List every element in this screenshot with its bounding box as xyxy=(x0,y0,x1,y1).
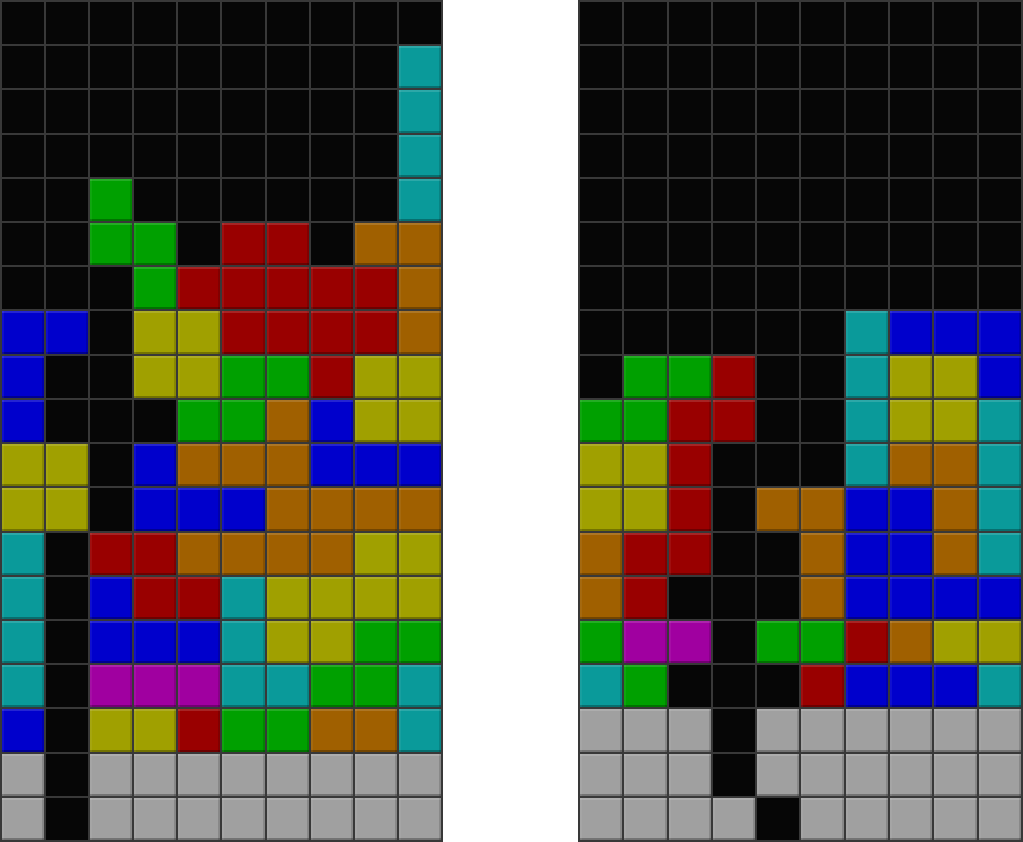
cell xyxy=(624,709,666,751)
cell xyxy=(757,2,799,44)
cell xyxy=(134,709,176,751)
cell xyxy=(890,754,932,796)
cell xyxy=(399,135,441,177)
cell xyxy=(311,533,353,575)
cell xyxy=(46,223,88,265)
cell xyxy=(2,444,44,486)
cell xyxy=(890,577,932,619)
cell xyxy=(134,311,176,353)
cell xyxy=(846,223,888,265)
cell xyxy=(669,356,711,398)
cell xyxy=(178,46,220,88)
cell xyxy=(669,577,711,619)
cell xyxy=(624,488,666,530)
cell xyxy=(355,577,397,619)
cell xyxy=(669,400,711,442)
cell xyxy=(580,533,622,575)
cell xyxy=(624,665,666,707)
cell xyxy=(46,400,88,442)
cell xyxy=(399,267,441,309)
cell xyxy=(979,798,1021,840)
cell xyxy=(399,444,441,486)
cell xyxy=(2,267,44,309)
cell xyxy=(222,709,264,751)
cell xyxy=(979,577,1021,619)
cell xyxy=(399,2,441,44)
cell xyxy=(178,621,220,663)
cell xyxy=(311,223,353,265)
cell xyxy=(801,46,843,88)
cell xyxy=(46,621,88,663)
cell xyxy=(669,90,711,132)
cell xyxy=(46,179,88,221)
cell xyxy=(713,533,755,575)
cell xyxy=(934,90,976,132)
cell xyxy=(178,754,220,796)
cell xyxy=(979,488,1021,530)
cell xyxy=(846,533,888,575)
cell xyxy=(222,798,264,840)
cell xyxy=(757,488,799,530)
cell xyxy=(134,400,176,442)
cell xyxy=(669,135,711,177)
cell xyxy=(846,621,888,663)
cell xyxy=(267,577,309,619)
cell xyxy=(669,665,711,707)
cell xyxy=(134,488,176,530)
cell xyxy=(669,179,711,221)
cell xyxy=(713,488,755,530)
cell xyxy=(90,533,132,575)
cell xyxy=(580,135,622,177)
cell xyxy=(355,709,397,751)
cell xyxy=(890,2,932,44)
cell xyxy=(934,135,976,177)
cell xyxy=(713,798,755,840)
cell xyxy=(311,2,353,44)
cell xyxy=(890,444,932,486)
cell xyxy=(624,577,666,619)
cell xyxy=(222,444,264,486)
cell xyxy=(399,179,441,221)
cell xyxy=(399,665,441,707)
cell xyxy=(801,621,843,663)
cell xyxy=(846,356,888,398)
cell xyxy=(399,311,441,353)
cell xyxy=(580,621,622,663)
cell xyxy=(399,621,441,663)
cell xyxy=(669,488,711,530)
cell xyxy=(355,311,397,353)
cell xyxy=(178,665,220,707)
cell xyxy=(846,754,888,796)
tetris-two-board-view xyxy=(0,0,1023,842)
cell xyxy=(2,135,44,177)
cell xyxy=(801,533,843,575)
cell xyxy=(2,311,44,353)
cell xyxy=(624,621,666,663)
cell xyxy=(2,798,44,840)
cell xyxy=(624,400,666,442)
cell xyxy=(624,179,666,221)
cell xyxy=(178,2,220,44)
cell xyxy=(2,2,44,44)
cell xyxy=(178,311,220,353)
cell xyxy=(178,488,220,530)
cell xyxy=(399,223,441,265)
cell xyxy=(934,709,976,751)
cell xyxy=(134,2,176,44)
cell xyxy=(801,798,843,840)
cell xyxy=(355,356,397,398)
cell xyxy=(713,223,755,265)
cell xyxy=(90,488,132,530)
cell xyxy=(46,444,88,486)
cell xyxy=(934,2,976,44)
cell xyxy=(713,754,755,796)
cell xyxy=(846,577,888,619)
cell xyxy=(757,267,799,309)
cell xyxy=(134,798,176,840)
cell xyxy=(2,533,44,575)
cell xyxy=(713,444,755,486)
cell xyxy=(979,311,1021,353)
cell xyxy=(46,90,88,132)
cell xyxy=(846,267,888,309)
cell xyxy=(355,267,397,309)
cell xyxy=(311,135,353,177)
cell xyxy=(222,135,264,177)
cell xyxy=(399,46,441,88)
cell xyxy=(267,356,309,398)
cell xyxy=(979,356,1021,398)
cell xyxy=(934,356,976,398)
cell xyxy=(222,2,264,44)
cell xyxy=(90,400,132,442)
cell xyxy=(90,46,132,88)
cell xyxy=(757,400,799,442)
cell xyxy=(934,798,976,840)
left-board[interactable] xyxy=(0,0,443,842)
cell xyxy=(311,400,353,442)
cell xyxy=(713,577,755,619)
cell xyxy=(46,754,88,796)
cell xyxy=(713,621,755,663)
cell xyxy=(2,179,44,221)
cell xyxy=(2,754,44,796)
cell xyxy=(801,709,843,751)
cell xyxy=(90,267,132,309)
cell xyxy=(669,798,711,840)
cell xyxy=(222,533,264,575)
cell xyxy=(757,444,799,486)
cell xyxy=(90,444,132,486)
cell xyxy=(713,46,755,88)
cell xyxy=(355,2,397,44)
cell xyxy=(399,709,441,751)
cell xyxy=(355,179,397,221)
cell xyxy=(934,533,976,575)
cell xyxy=(934,311,976,353)
cell xyxy=(580,179,622,221)
cell xyxy=(624,356,666,398)
cell xyxy=(669,621,711,663)
cell xyxy=(134,46,176,88)
cell xyxy=(890,46,932,88)
cell xyxy=(355,400,397,442)
cell xyxy=(355,754,397,796)
cell xyxy=(801,135,843,177)
cell xyxy=(979,709,1021,751)
cell xyxy=(757,577,799,619)
cell xyxy=(801,223,843,265)
cell xyxy=(580,798,622,840)
cell xyxy=(979,179,1021,221)
cell xyxy=(890,179,932,221)
cell xyxy=(934,488,976,530)
cell xyxy=(178,533,220,575)
cell xyxy=(399,90,441,132)
cell xyxy=(267,798,309,840)
cell xyxy=(846,798,888,840)
cell xyxy=(399,577,441,619)
cell xyxy=(355,223,397,265)
cell xyxy=(46,577,88,619)
cell xyxy=(178,356,220,398)
cell xyxy=(624,311,666,353)
cell xyxy=(580,90,622,132)
cell xyxy=(713,665,755,707)
cell xyxy=(669,709,711,751)
cell xyxy=(713,90,755,132)
cell xyxy=(934,400,976,442)
cell xyxy=(178,90,220,132)
cell xyxy=(801,311,843,353)
cell xyxy=(890,400,932,442)
cell xyxy=(713,135,755,177)
cell xyxy=(134,90,176,132)
cell xyxy=(178,135,220,177)
cell xyxy=(713,356,755,398)
cell xyxy=(801,754,843,796)
cell xyxy=(134,754,176,796)
cell xyxy=(801,400,843,442)
cell xyxy=(2,621,44,663)
cell xyxy=(890,621,932,663)
cell xyxy=(399,754,441,796)
cell xyxy=(890,709,932,751)
cell xyxy=(979,444,1021,486)
cell xyxy=(178,798,220,840)
cell xyxy=(934,223,976,265)
cell xyxy=(2,356,44,398)
cell xyxy=(757,90,799,132)
cell xyxy=(90,798,132,840)
cell xyxy=(801,665,843,707)
cell xyxy=(399,400,441,442)
cell xyxy=(311,179,353,221)
cell xyxy=(624,135,666,177)
cell xyxy=(801,90,843,132)
cell xyxy=(222,400,264,442)
cell xyxy=(222,223,264,265)
cell xyxy=(934,444,976,486)
cell xyxy=(178,267,220,309)
cell xyxy=(267,267,309,309)
cell xyxy=(713,709,755,751)
cell xyxy=(979,2,1021,44)
cell xyxy=(311,798,353,840)
cell xyxy=(669,2,711,44)
cell xyxy=(222,488,264,530)
cell xyxy=(669,267,711,309)
cell xyxy=(979,135,1021,177)
cell xyxy=(267,444,309,486)
cell xyxy=(222,665,264,707)
cell xyxy=(624,533,666,575)
cell xyxy=(890,798,932,840)
cell xyxy=(311,90,353,132)
cell xyxy=(267,223,309,265)
cell xyxy=(46,709,88,751)
cell xyxy=(46,46,88,88)
cell xyxy=(624,444,666,486)
cell xyxy=(580,709,622,751)
cell xyxy=(846,46,888,88)
cell xyxy=(355,90,397,132)
cell xyxy=(846,709,888,751)
cell xyxy=(355,444,397,486)
cell xyxy=(355,533,397,575)
cell xyxy=(46,533,88,575)
cell xyxy=(90,577,132,619)
cell xyxy=(311,267,353,309)
cell xyxy=(267,90,309,132)
cell xyxy=(355,488,397,530)
cell xyxy=(2,400,44,442)
cell xyxy=(890,223,932,265)
cell xyxy=(890,665,932,707)
cell xyxy=(890,356,932,398)
cell xyxy=(979,267,1021,309)
cell xyxy=(222,267,264,309)
cell xyxy=(399,798,441,840)
cell xyxy=(979,223,1021,265)
cell xyxy=(624,798,666,840)
cell xyxy=(90,311,132,353)
cell xyxy=(979,400,1021,442)
cell xyxy=(979,533,1021,575)
cell xyxy=(979,754,1021,796)
cell xyxy=(90,2,132,44)
cell xyxy=(399,356,441,398)
cell xyxy=(757,621,799,663)
cell xyxy=(267,179,309,221)
cell xyxy=(624,46,666,88)
cell xyxy=(134,356,176,398)
cell xyxy=(890,533,932,575)
cell xyxy=(46,665,88,707)
cell xyxy=(757,46,799,88)
cell xyxy=(267,311,309,353)
cell xyxy=(757,665,799,707)
cell xyxy=(90,223,132,265)
cell xyxy=(846,311,888,353)
cell xyxy=(934,46,976,88)
cell xyxy=(801,179,843,221)
cell xyxy=(624,90,666,132)
cell xyxy=(890,90,932,132)
cell xyxy=(311,577,353,619)
cell xyxy=(134,179,176,221)
cell xyxy=(979,46,1021,88)
cell xyxy=(979,665,1021,707)
cell xyxy=(801,2,843,44)
cell xyxy=(669,223,711,265)
cell xyxy=(580,400,622,442)
cell xyxy=(669,533,711,575)
cell xyxy=(90,179,132,221)
cell xyxy=(46,798,88,840)
cell xyxy=(580,2,622,44)
cell xyxy=(757,223,799,265)
cell xyxy=(580,754,622,796)
cell xyxy=(90,135,132,177)
cell xyxy=(669,46,711,88)
right-board[interactable] xyxy=(578,0,1023,842)
cell xyxy=(267,709,309,751)
cell xyxy=(757,179,799,221)
cell xyxy=(846,400,888,442)
cell xyxy=(2,709,44,751)
cell xyxy=(46,267,88,309)
cell xyxy=(311,444,353,486)
cell xyxy=(355,798,397,840)
cell xyxy=(801,267,843,309)
cell xyxy=(134,577,176,619)
cell xyxy=(934,621,976,663)
cell xyxy=(890,488,932,530)
cell xyxy=(669,444,711,486)
cell xyxy=(178,179,220,221)
cell xyxy=(757,709,799,751)
cell xyxy=(399,488,441,530)
cell xyxy=(134,267,176,309)
cell xyxy=(890,311,932,353)
cell xyxy=(46,356,88,398)
cell xyxy=(890,267,932,309)
cell xyxy=(624,2,666,44)
cell xyxy=(90,90,132,132)
cell xyxy=(222,621,264,663)
cell xyxy=(46,311,88,353)
cell xyxy=(801,488,843,530)
cell xyxy=(580,311,622,353)
cell xyxy=(846,488,888,530)
cell xyxy=(890,135,932,177)
cell xyxy=(222,46,264,88)
cell xyxy=(801,444,843,486)
cell xyxy=(624,754,666,796)
cell xyxy=(713,400,755,442)
cell xyxy=(846,665,888,707)
cell xyxy=(934,577,976,619)
cell xyxy=(624,223,666,265)
cell xyxy=(267,2,309,44)
cell xyxy=(311,46,353,88)
cell xyxy=(846,2,888,44)
cell xyxy=(178,709,220,751)
